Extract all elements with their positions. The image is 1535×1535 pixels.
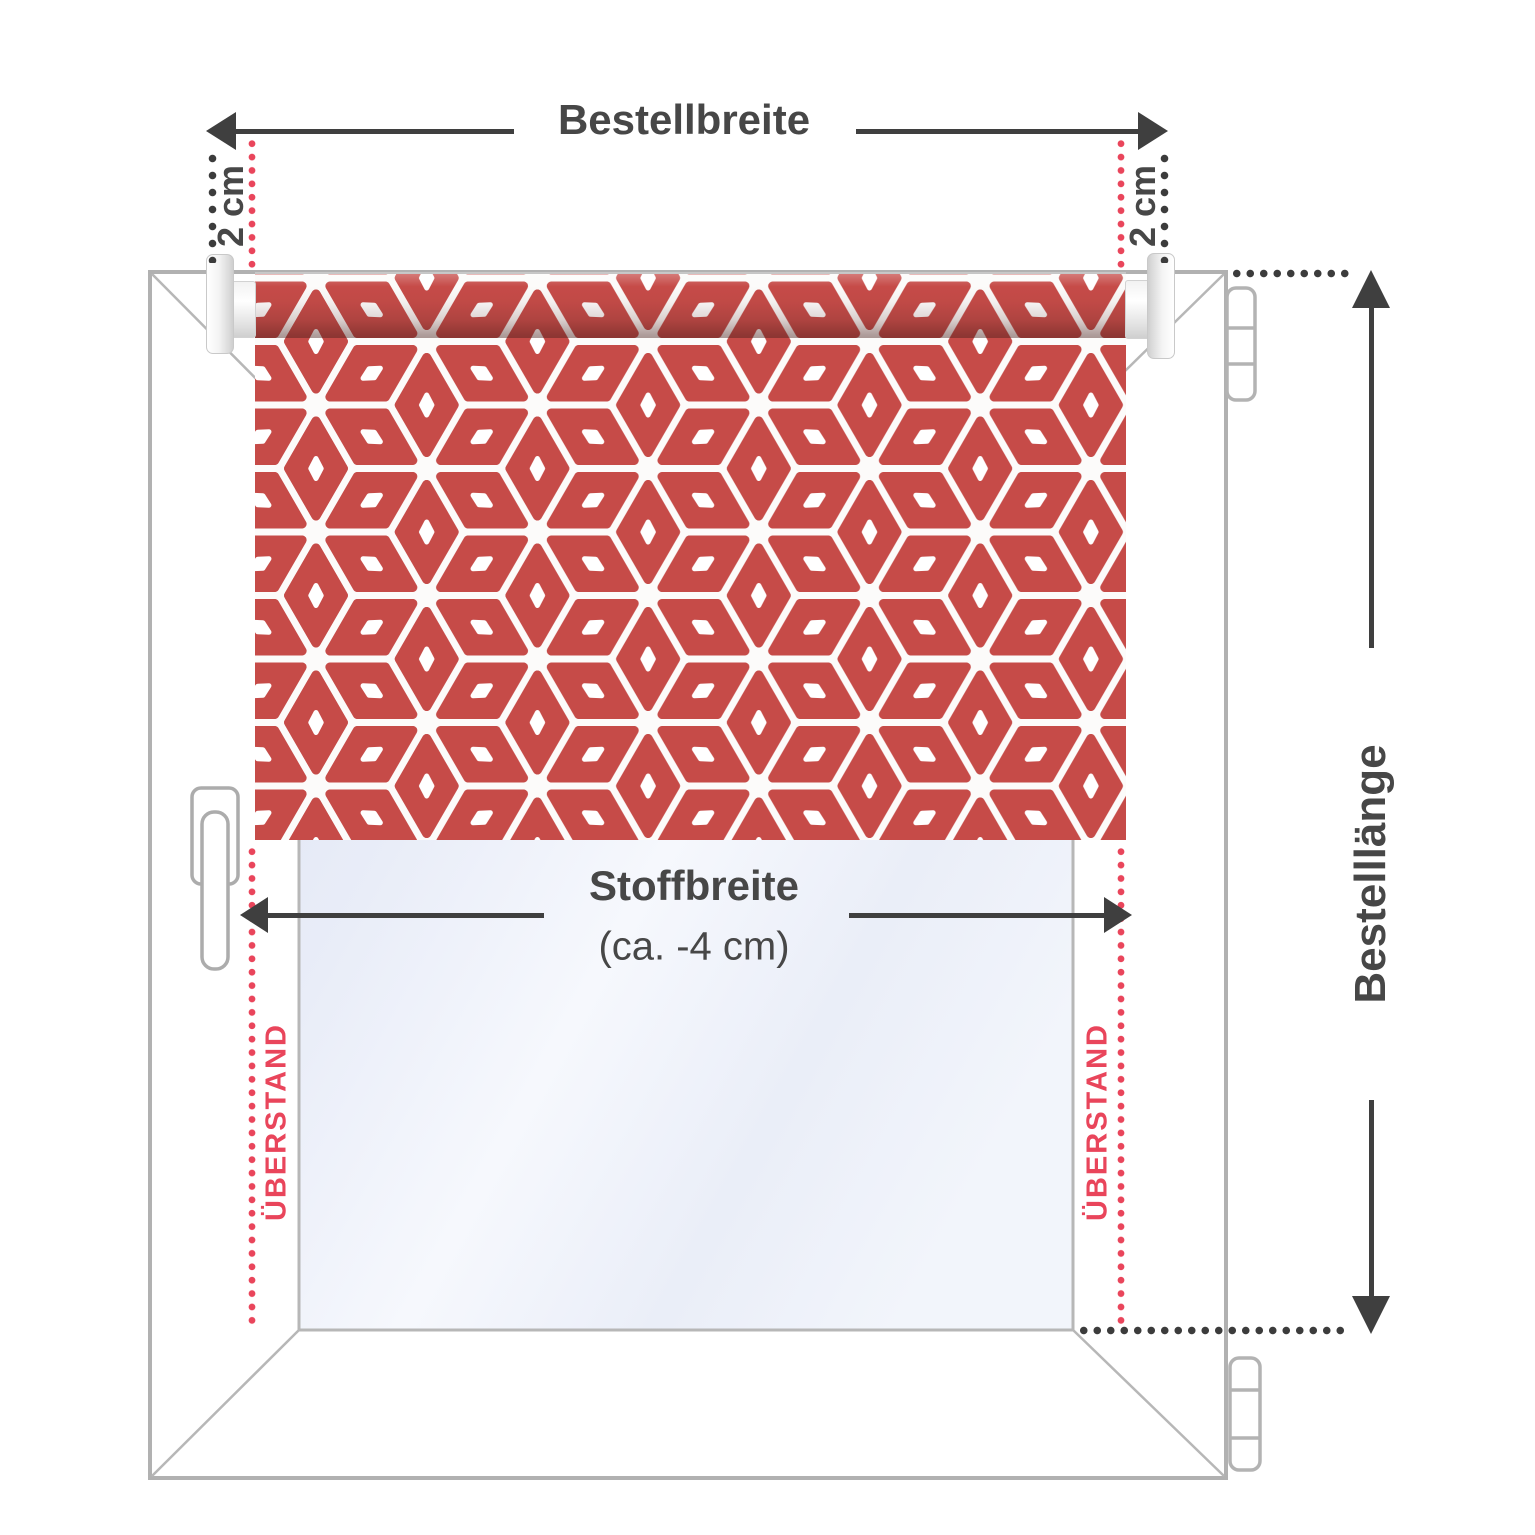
roller-tube-shadow [255,272,1126,338]
roller-bracket-right-icon [1147,253,1175,359]
order-length-dotted-top [1230,269,1352,278]
order-width-label: Bestellbreite [558,96,810,144]
fabric-width-arrow-line [849,913,1127,918]
fabric-width-label: Stoffbreite [589,862,799,910]
roller-blind-fabric [255,272,1126,840]
roller-bracket-left-icon [206,254,234,354]
order-length-label: Bestelllänge [1346,744,1396,1003]
order-width-arrowhead-right-icon [1138,112,1168,150]
diagram-canvas: Bestellbreite 2 cm 2 cm ÜBERSTAND ÜBERST… [0,0,1535,1535]
overhang-left-label: ÜBERSTAND [261,1023,294,1221]
fabric-width-note: (ca. -4 cm) [598,925,789,970]
roller-bracket-pin-left-icon [231,281,256,338]
hinge-bottom-icon [1230,1358,1260,1470]
offset-right-label: 2 cm [1122,165,1164,247]
offset-left-label: 2 cm [210,165,252,247]
order-width-arrow-line [856,129,1152,134]
order-width-arrow-line [222,129,514,134]
order-length-arrow-line [1369,1100,1374,1312]
hinge-top-icon [1227,288,1255,400]
order-length-dotted-bottom [1077,1326,1349,1335]
overhang-right-label: ÜBERSTAND [1082,1023,1115,1221]
fabric-width-arrow-line [258,913,544,918]
order-length-arrowhead-bottom-icon [1352,1296,1390,1334]
order-length-arrow-line [1369,288,1374,648]
fabric-edge-dotted-left-top [248,137,256,270]
fabric-edge-dotted-right-top [1117,137,1125,270]
fabric-width-arrowhead-right-icon [1104,897,1132,933]
